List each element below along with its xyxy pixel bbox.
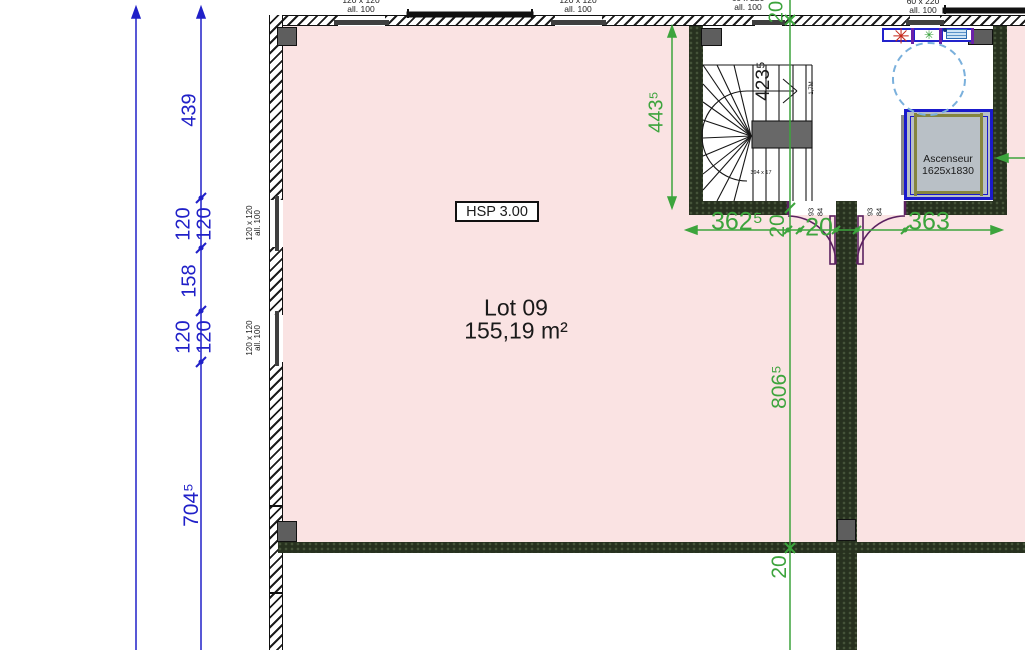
post-stairwell-top-left [701, 28, 722, 46]
stair-tread-note: 394 x 17 [750, 170, 771, 176]
dim-left-120c: 120 [173, 320, 196, 353]
dim-left-704: 704⁵ [180, 483, 204, 527]
vent-icon: ✳ [924, 28, 934, 42]
dim-stairwell-height: 443⁵ [646, 91, 669, 133]
dim-left-120d: 120 [194, 320, 217, 353]
window-label-left-1: 120 x 120 all. 100 [246, 205, 262, 240]
hsp-label: HSP 3.00 [466, 204, 528, 220]
window-sill-label: all. 100 [254, 320, 262, 355]
window-sill-label: all. 100 [342, 5, 379, 14]
window-label-top-3: 60 x 220 all. 100 [732, 0, 765, 11]
dim-door-left-93: 93 [807, 208, 816, 216]
window-label-top-1: 120 x 120 all. 100 [342, 0, 379, 13]
elevator-rail-right [980, 113, 983, 196]
dim-room-height-806: 806⁵ [768, 365, 792, 409]
post-bottom-left [277, 521, 297, 542]
dim-stairwell-width: 423⁵ [753, 61, 775, 101]
dim-door-left-84: 84 [816, 208, 825, 216]
elevator-rail-left [914, 113, 917, 196]
window-label-top-2: 120 x 120 all. 100 [559, 0, 596, 13]
dim-bottom-363: 363 [908, 208, 950, 237]
dim-bottom-20-right: 20 [805, 214, 833, 243]
window-sill-label: all. 100 [559, 5, 596, 14]
window-sill-label: all. 100 [254, 205, 262, 240]
fixture-divider-3 [971, 28, 974, 44]
post-central-wall [837, 519, 856, 541]
post-top-left [277, 27, 297, 46]
window-label-top-4: 60 x 220 all. 100 [907, 0, 940, 14]
wall-joint-tick-1 [269, 505, 283, 507]
dim-door-right-84: 84 [875, 208, 884, 216]
elevator-door-line [901, 115, 904, 195]
wall-joint-tick-2 [269, 592, 283, 594]
stair-headroom-note: 1,7M [809, 81, 815, 94]
dim-left-120a: 120 [173, 207, 196, 240]
sink-icon [946, 29, 967, 39]
fixture-divider-2 [939, 28, 942, 44]
dim-bottom-20-left: 20 [766, 214, 790, 237]
window-top-2-sill [551, 20, 606, 25]
elevator-rail-top [917, 114, 980, 117]
window-sill-label: all. 100 [907, 6, 940, 15]
window-label-left-2: 120 x 120 all. 100 [246, 320, 262, 355]
window-left-1-glazing [275, 196, 279, 251]
elevator-dimensions: 1625x1830 [922, 165, 974, 177]
window-top-4-sill [906, 20, 944, 25]
dim-left-158: 158 [179, 264, 202, 297]
stairwell-wall-left [689, 26, 703, 215]
heating-valve-icon: ✳ [892, 25, 910, 50]
partition-wall-central [836, 201, 857, 650]
hsp-label-box: HSP 3.00 [455, 201, 539, 222]
elevator-name: Ascenseur [923, 153, 973, 165]
dim-left-439: 439 [179, 93, 202, 126]
room-wall-bottom [278, 542, 1025, 553]
window-left-2-glazing [275, 311, 279, 366]
fixture-divider-1 [911, 28, 914, 44]
sensor-dot-icon [943, 28, 947, 32]
dim-wall-top-20: 20 [766, 1, 789, 23]
dim-left-120b: 120 [194, 207, 217, 240]
window-top-1-sill [334, 20, 389, 25]
stairwell-wall-right [993, 26, 1007, 215]
dim-wall-bottom-20: 20 [768, 555, 792, 578]
floor-plan-canvas: ✳ ✳ [0, 0, 1025, 650]
lot-area: 155,19 m² [464, 318, 568, 345]
window-sill-label: all. 100 [732, 3, 765, 12]
dim-door-right-93: 93 [866, 208, 875, 216]
elevator-rail-bottom [917, 191, 980, 194]
dim-bottom-362: 362⁵ [711, 208, 763, 237]
